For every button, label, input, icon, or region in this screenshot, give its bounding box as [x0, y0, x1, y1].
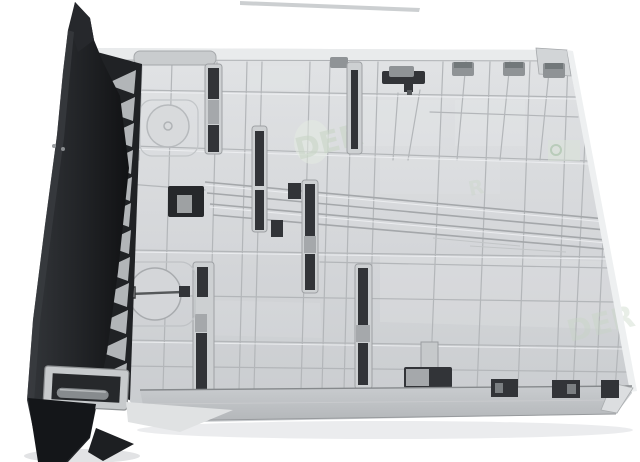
tray-body: DER DER R	[95, 48, 639, 423]
latch-slider	[406, 369, 429, 386]
clip-icon	[330, 57, 348, 68]
latch-clip	[389, 66, 414, 77]
clip-shadow	[545, 63, 563, 69]
product-photo: DER DER R	[0, 0, 640, 462]
slot-slider	[195, 314, 207, 332]
slot-insert	[208, 125, 219, 152]
catch	[288, 183, 301, 199]
latch-pin-tip	[407, 90, 412, 95]
band-slot-notch	[567, 384, 576, 394]
catch	[271, 220, 283, 237]
bezel-dot	[52, 144, 56, 148]
band-slot-notch	[495, 383, 503, 393]
slot-insert	[255, 190, 264, 230]
slot-insert	[305, 184, 315, 236]
latch-tab	[421, 342, 438, 370]
band-slot	[601, 380, 619, 398]
slot-slider	[356, 325, 370, 342]
dial-icon	[147, 105, 189, 147]
lock-bracket	[168, 186, 204, 217]
slot-insert	[305, 254, 315, 290]
slot-slider	[208, 100, 219, 124]
slot-insert	[197, 267, 208, 297]
slot-insert	[358, 268, 368, 325]
clip-shadow	[505, 62, 523, 68]
bracket-insert	[177, 195, 192, 213]
bezel-dot	[61, 147, 65, 151]
slot-insert	[255, 131, 264, 186]
slot-insert	[196, 333, 207, 389]
watermark-tinted-cell	[548, 140, 580, 161]
slot-insert	[358, 343, 368, 385]
slot-slider	[304, 236, 316, 253]
handle-recess	[134, 51, 216, 65]
slot-insert	[351, 70, 358, 149]
needle-end-right	[179, 286, 190, 297]
clip-shadow	[454, 62, 472, 68]
paper-tray-illustration: DER DER R	[0, 0, 640, 462]
slot-insert	[208, 68, 219, 99]
